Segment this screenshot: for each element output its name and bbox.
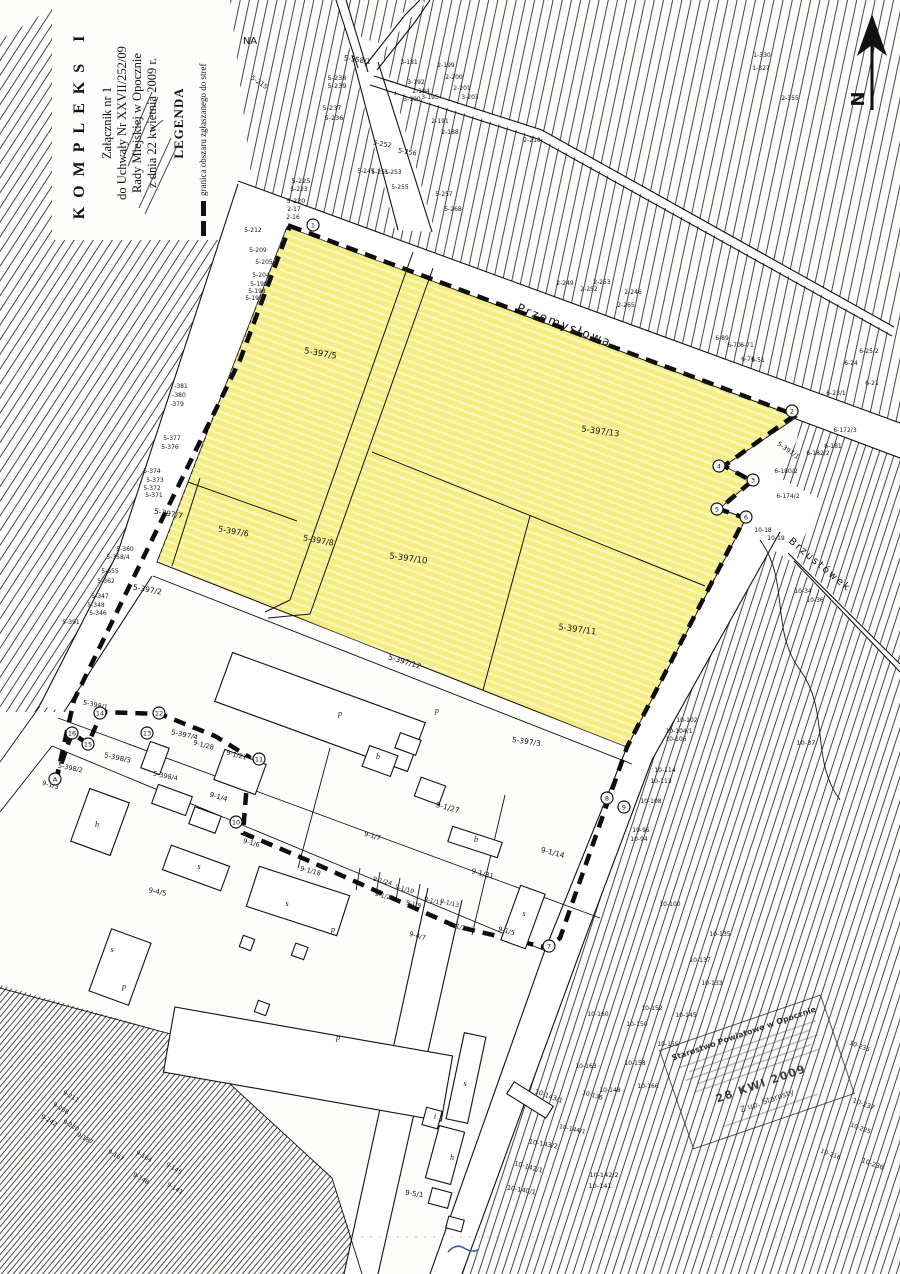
parcel-label: 10-148 (599, 1087, 620, 1094)
boundary-point-number: 9 (622, 803, 626, 811)
boundary-point: 7 (543, 940, 555, 952)
building-letter: h (95, 820, 99, 829)
parcel-label: 10-142/2 (589, 1171, 618, 1179)
parcel-label: 9-1/14 (540, 845, 566, 860)
parcel-label: 2-253 (593, 279, 611, 286)
building-letter: p (434, 706, 439, 715)
parcel-label: 5-236 (325, 114, 344, 122)
building-letter: b (474, 835, 478, 844)
boundary-point: A (49, 773, 61, 785)
parcel-label: 5-372 (143, 485, 161, 492)
boundary-point-number: 13 (143, 729, 151, 737)
parcel-label: 10-95 (632, 827, 650, 834)
boundary-point: 9 (618, 801, 630, 813)
parcel-label: 10-113 (650, 778, 671, 785)
boundary-point: 3 (747, 474, 759, 486)
boundary-point: 6 (740, 511, 752, 523)
parcel-label: 3-195 (421, 94, 439, 101)
parcel-label: 9-1/23 (374, 891, 395, 903)
parcel-label: 5-362 (97, 578, 115, 585)
boundary-point: 16 (66, 727, 78, 739)
parcel-label: 6-180/2 (774, 468, 797, 475)
building-letter: p (121, 982, 126, 991)
parcel-label: 5-199 (250, 281, 268, 288)
legend-item-label: granica obszaru zgłaszanego do stref (198, 64, 208, 196)
building-letter: i (434, 1112, 436, 1121)
boundary-point-number: 4 (717, 462, 721, 470)
boundary-point: 15 (82, 738, 94, 750)
parcel-label: 5-209 (249, 247, 267, 254)
parcel-label: 5-204 (252, 272, 270, 279)
parcel-label: 5-398/2 (57, 762, 83, 775)
parcel-label: 5-223 (290, 186, 308, 193)
parcel-label: 10-114 (654, 767, 675, 774)
parcel-label: 10-37 (797, 739, 816, 747)
parcel-label: 5-193 (245, 295, 263, 302)
building-letter: s (197, 862, 200, 871)
parcel-label: 5-257 (435, 191, 453, 198)
parcel-label: 9-5/1 (405, 1189, 424, 1199)
parcel-label: 5-655 (101, 568, 119, 575)
parcel-label: 5-374 (143, 468, 161, 475)
parcel-label: 9-1/27 (435, 800, 461, 815)
parcel-label: 3-190 (403, 96, 421, 103)
boundary-point-number: 10 (232, 818, 240, 826)
boundary-point-number: 5 (715, 505, 719, 513)
boundary-point-number: 16 (68, 729, 76, 737)
parcel-label: 2-17 (287, 206, 301, 213)
parcel-label: 6-51 (751, 357, 765, 364)
boundary-point: 10 (230, 816, 242, 828)
parcel-label: 2-191 (431, 118, 449, 125)
parcel-label: 6-181 (824, 443, 842, 450)
parcel-label: 10-166 (637, 1083, 658, 1090)
parcel-label: 2-218 (523, 137, 541, 144)
parcel-label: -379 (170, 401, 184, 408)
parcel-label: 10-150 (626, 1021, 647, 1028)
parcel-label: 9-1/24 (372, 876, 393, 888)
building-letter: s (110, 945, 113, 954)
boundary-point-number: 1 (311, 221, 315, 229)
boundary-point-number: 14 (96, 709, 104, 717)
parcel-label: 5-371 (145, 492, 163, 499)
parcel-label: 5-238 (328, 74, 347, 82)
parcel-label: 9-1/6 (242, 837, 260, 849)
boundary-point-number: 12 (155, 709, 163, 717)
parcel-label: 2-355 (781, 95, 799, 102)
boundary-point-number: 11 (255, 755, 263, 763)
building-letter: h (450, 1153, 454, 1162)
parcel-label: 3-192 (407, 79, 425, 86)
parcel-label: 5-198 (248, 288, 266, 295)
parcel-label: 10-104/1 (665, 728, 692, 735)
building-letter: p (330, 925, 335, 934)
parcel-label: 9-1/7 (363, 830, 381, 842)
parcel-label: 5-255 (391, 184, 409, 191)
boundary-point-number: 15 (84, 740, 92, 748)
parcel-label: 5-239 (328, 82, 347, 90)
parcel-label: 10-133 (701, 980, 722, 987)
attachment-line-4: z dnia 22 kwietnia 2009 r. (145, 8, 160, 238)
parcel-label: NA (243, 36, 257, 47)
parcel-label: 3-181 (400, 59, 418, 66)
parcel-label: 10-141 (588, 1182, 611, 1190)
parcel-label: 10-152 (641, 1005, 662, 1012)
parcel-label: 5-212 (244, 227, 262, 234)
dashed-line-icon (201, 221, 206, 236)
parcel-label: 5-360 (116, 546, 134, 553)
parcel-label: 6-172/3 (833, 427, 856, 434)
parcel-label: 5-237 (323, 104, 342, 112)
boundary-point: 12 (153, 707, 165, 719)
boundary-point: 5 (711, 503, 723, 515)
attachment-line-3: Rady Miejskiej w Opocznie (130, 8, 145, 238)
parcel-label: 6-174/2 (776, 493, 799, 500)
parcel-label: 5-398/3 (103, 751, 131, 764)
parcel-label: 9-1/4 (209, 791, 229, 804)
parcel-label: 10-100 (659, 901, 680, 908)
parcel-label: 5-268 (444, 206, 462, 213)
parcel-label: 9-1/31 (471, 867, 495, 881)
parcel-label: 6-182/2 (806, 450, 829, 457)
parcel-label: 2-252 (580, 286, 598, 293)
parcel-label: 10-34 (794, 588, 812, 595)
parcel-label: 10-36 (806, 597, 824, 604)
parcel-label: 2-201 (453, 85, 471, 92)
building-letter: p (337, 709, 342, 718)
attachment-reference: Załącznik nr 1 do Uchwały Nr XXVII/252/0… (98, 8, 166, 238)
parcel-label: 2-188 (441, 129, 459, 136)
parcel-label: 10-160 (587, 1011, 608, 1018)
boundary-point-number: 3 (751, 476, 755, 484)
parcel-label: 6-71 (740, 342, 754, 349)
boundary-point: 11 (253, 753, 265, 765)
parcel-label: 6-23/1 (826, 390, 846, 397)
parcel-label: 10-135 (709, 931, 730, 938)
building-letter: p (335, 1033, 340, 1042)
parcel-label: 2-200 (445, 74, 463, 81)
boundary-point: 13 (141, 727, 153, 739)
parcel-label: 5-373 (146, 477, 164, 484)
building-letter: b (376, 752, 380, 761)
parcel-label: 5-220 (287, 197, 306, 205)
boundary-point-number: 7 (547, 942, 551, 950)
building-letter: s (522, 909, 525, 918)
parcel-label: 5-358/4 (106, 554, 129, 561)
parcel-label: -381 (174, 383, 188, 390)
boundary-point: 14 (94, 707, 106, 719)
parcel-label: 6-25/2 (859, 348, 879, 355)
parcel-label: 5-253 (384, 169, 402, 176)
boundary-point: 2 (786, 405, 798, 417)
parcel-label: 5-376 (161, 444, 179, 451)
parcel-label: 5-347 (91, 593, 109, 600)
parcel-label: 5-391 (62, 619, 80, 626)
parcel-label: 2-199 (437, 62, 455, 69)
north-label: N (846, 91, 867, 106)
parcel-label: 1-327 (752, 65, 770, 72)
dashed-line-icon (201, 201, 206, 216)
boundary-point-number: 6 (744, 513, 748, 521)
parcel-label: 10-163 (575, 1063, 596, 1070)
parcel-label: 5-397/4 (170, 728, 199, 742)
parcel-label: -380 (172, 392, 186, 399)
boundary-point-number: 8 (605, 794, 609, 802)
scanned-map-sheet: { "doc": { "kompleks": "KOMPLEKS I", "za… (0, 0, 900, 1274)
boundary-point-number: 2 (790, 407, 794, 415)
title-block: KOMPLEKS I Załącznik nr 1 do Uchwały Nr … (60, 8, 238, 238)
parcel-label: 10-155 (657, 1041, 678, 1048)
boundary-point: 4 (713, 460, 725, 472)
parcel-label: 5-398/4 (152, 770, 178, 783)
parcel-label: 10-145 (675, 1012, 696, 1019)
kompleks-title: KOMPLEKS I (62, 8, 98, 238)
parcel-label: 5-205 (255, 259, 273, 266)
parcel-label: 10-158 (624, 1060, 645, 1067)
parcel-label: 2-246 (624, 289, 642, 296)
parcel-label: 10-18 (754, 527, 772, 534)
parcel-label: 6-70 (727, 342, 741, 349)
parcel-label: 5-377 (163, 435, 181, 442)
boundary-point: 8 (601, 792, 613, 804)
legend-title: LEGENDA (166, 8, 190, 238)
parcel-label: 10-108 (640, 798, 661, 805)
legend-item: granica obszaru zgłaszanego do stref (190, 8, 216, 238)
attachment-line-1: Załącznik nr 1 (100, 8, 115, 238)
parcel-label: 1-330 (753, 52, 771, 59)
parcel-label: 10-106 (665, 736, 686, 743)
parcel-label: 9-4/5 (148, 886, 168, 898)
zone-parcel-label: 5-397/3 (511, 735, 541, 748)
building-letter: s (463, 1079, 466, 1088)
parcel-label: 6-89 (715, 335, 729, 342)
attachment-line-2: do Uchwały Nr XXVII/252/09 (115, 8, 130, 238)
parcel-label: 6-24 (844, 360, 858, 367)
building-letter: s (285, 899, 288, 908)
parcel-label: 5-346 (89, 610, 107, 617)
parcel-label: 5-225 (292, 177, 311, 185)
parcel-label: 2-249 (556, 280, 574, 287)
parcel-label: 10-19 (767, 535, 785, 542)
parcel-label: 3-203 (461, 94, 479, 101)
boundary-point-number: A (53, 775, 58, 783)
boundary-point: 1 (307, 219, 319, 231)
parcel-label: 5-348 (87, 602, 105, 609)
parcel-label: 2-16 (286, 214, 300, 221)
parcel-label: 10-102 (676, 717, 697, 724)
parcel-label: 6-21 (865, 380, 879, 387)
parcel-label: 10-94 (630, 836, 648, 843)
parcel-label: 2-265 (617, 302, 635, 309)
parcel-label: 10-137 (689, 957, 710, 964)
